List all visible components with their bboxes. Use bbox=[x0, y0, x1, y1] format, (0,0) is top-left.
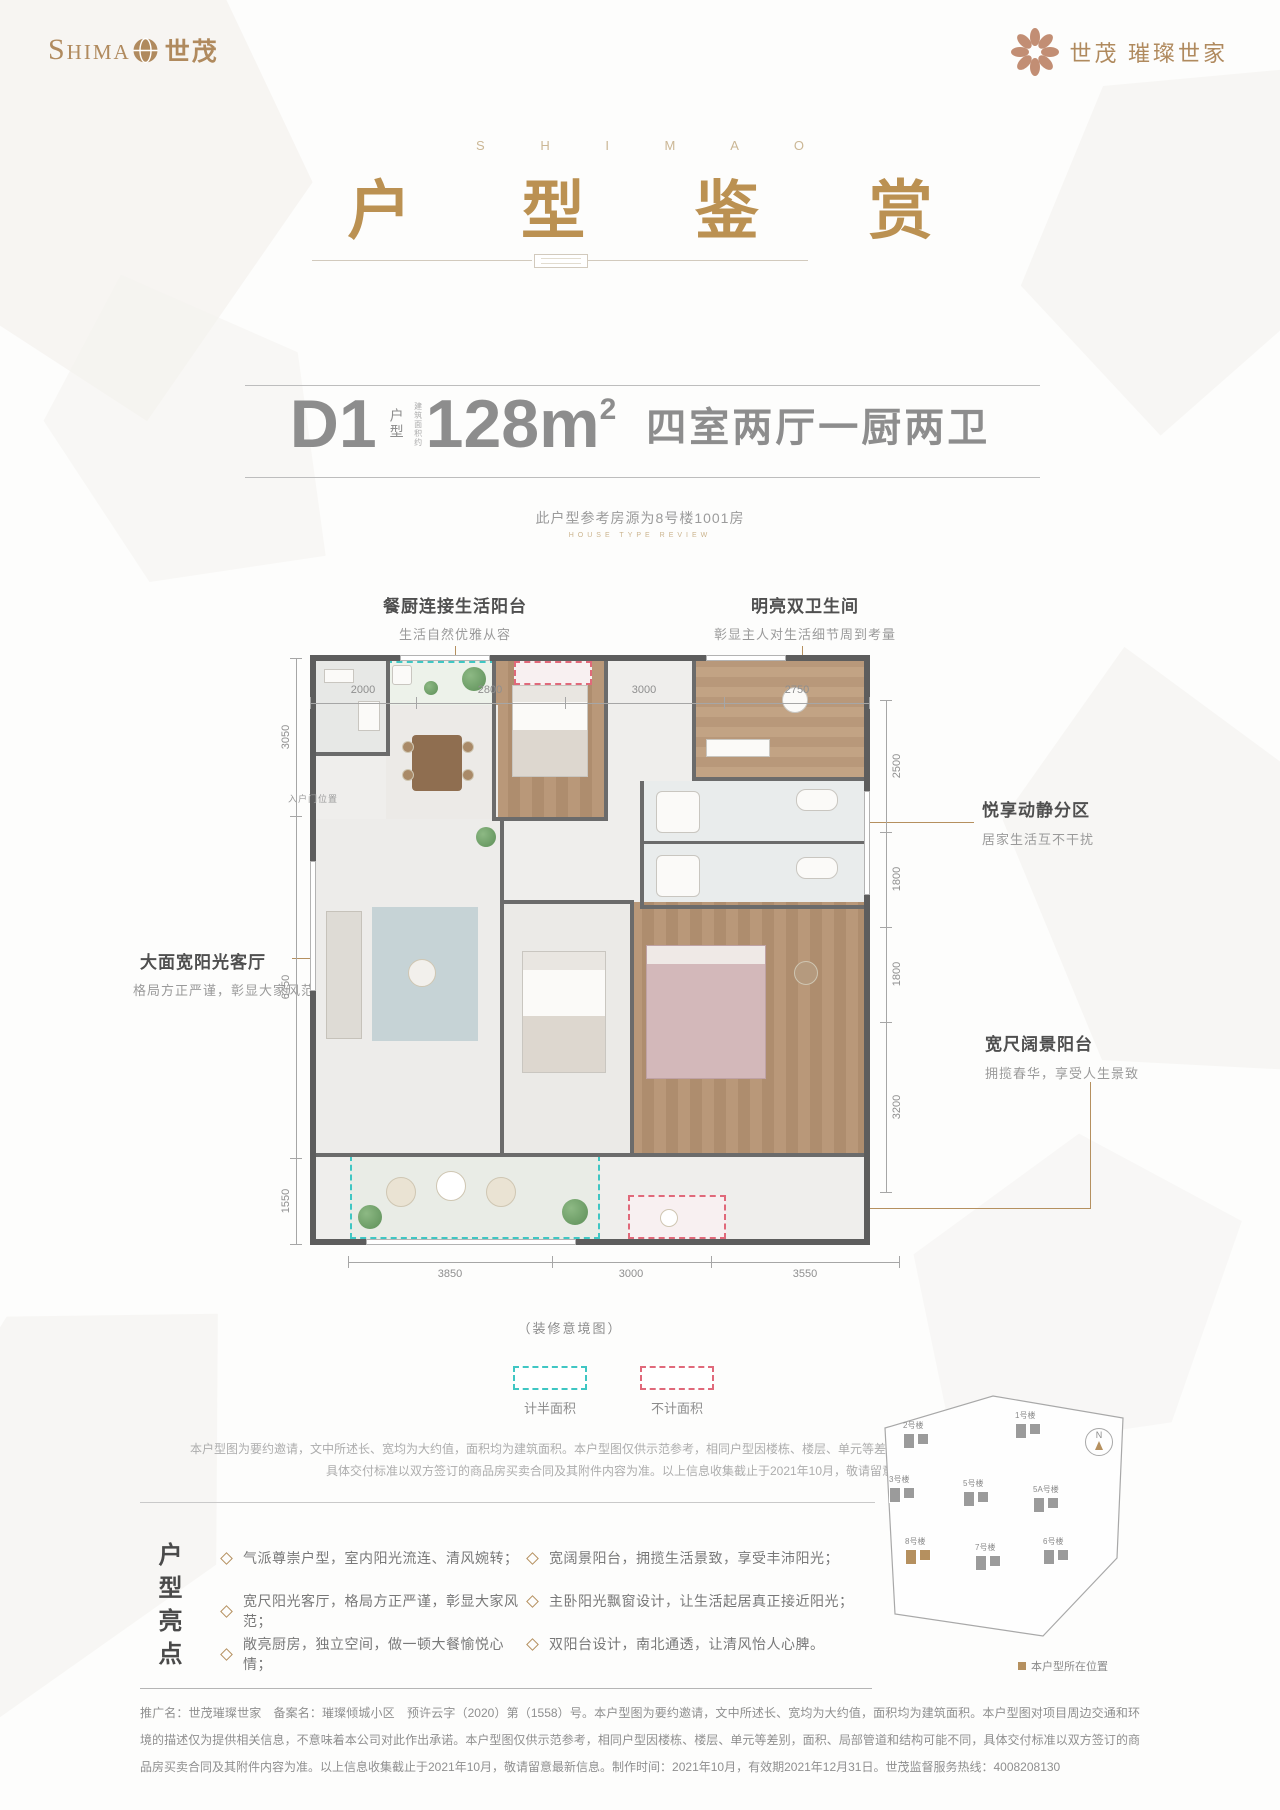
washing-machine bbox=[392, 665, 412, 685]
dim-tick bbox=[880, 700, 892, 701]
dim-label: 1800 bbox=[891, 849, 903, 909]
unit-reference-en: HOUSE TYPE REVIEW bbox=[0, 532, 1280, 539]
bathtub bbox=[656, 791, 700, 833]
wall bbox=[640, 841, 864, 844]
dim-tick bbox=[552, 1256, 553, 1268]
dim-label: 1550 bbox=[280, 1171, 292, 1231]
room-bathroom-north bbox=[694, 661, 864, 777]
dim-line-left bbox=[296, 658, 297, 1245]
callout-view-balcony: 宽尺阔景阳台 拥揽春华，享受人生景致 bbox=[985, 1030, 1185, 1082]
building: 3号楼 bbox=[889, 1474, 949, 1503]
title-english: S H I M A O bbox=[0, 138, 1280, 153]
dim-label: 3550 bbox=[775, 1268, 835, 1280]
highlight-item: 双阳台设计，南北通透，让清风怡人心脾。 bbox=[528, 1634, 858, 1654]
dining-chair bbox=[402, 769, 414, 781]
diamond-icon bbox=[220, 1605, 233, 1618]
highlight-text: 主卧阳光飘窗设计，让生活起居真正接近阳光； bbox=[549, 1591, 854, 1611]
wall bbox=[630, 902, 634, 1155]
wall bbox=[692, 661, 696, 779]
bed-north bbox=[512, 685, 588, 777]
title-ornament-box bbox=[534, 254, 588, 268]
window bbox=[706, 655, 786, 661]
highlight-item: 气派尊崇户型，室内阳光流连、清风婉转； bbox=[222, 1548, 522, 1568]
globe-icon bbox=[132, 37, 159, 64]
leader-line bbox=[1090, 1082, 1091, 1209]
highlight-text: 气派尊崇户型，室内阳光流连、清风婉转； bbox=[243, 1548, 519, 1568]
dim-tick bbox=[565, 697, 566, 709]
callout-kitchen-balcony: 餐厨连接生活阳台 生活自然优雅从容 bbox=[335, 592, 575, 643]
building: 6号楼 bbox=[1043, 1536, 1103, 1565]
callout-bathrooms: 明亮双卫生间 彰显主人对生活细节周到考量 bbox=[680, 592, 930, 643]
dim-tick bbox=[880, 1192, 892, 1193]
dim-tick bbox=[899, 1256, 900, 1268]
plant bbox=[476, 827, 496, 847]
unit-area: 128m2 bbox=[426, 390, 617, 458]
plant bbox=[562, 1199, 588, 1225]
wall bbox=[316, 1153, 864, 1157]
building: 7号楼 bbox=[975, 1542, 1035, 1571]
floor-plan bbox=[310, 655, 870, 1245]
section-divider-top bbox=[140, 1502, 875, 1503]
legend-excluded-area-label: 不计面积 bbox=[640, 1398, 714, 1417]
dim-tick bbox=[724, 697, 725, 709]
site-map: 2号楼 1号楼 3号楼 5号楼 5A号楼 8号楼 7号楼 6号楼 N bbox=[875, 1388, 1131, 1650]
diamond-icon bbox=[526, 1595, 539, 1608]
dim-tick bbox=[290, 816, 302, 817]
bay-window-north bbox=[514, 661, 592, 685]
callout-living-room: 大面宽阳光客厅 bbox=[140, 948, 300, 973]
dim-label: 2750 bbox=[767, 684, 827, 696]
dim-tick bbox=[880, 832, 892, 833]
dim-line-top bbox=[310, 703, 870, 704]
highlight-item: 宽阔景阳台，拥揽生活景致，享受丰沛阳光； bbox=[528, 1548, 858, 1568]
unit-rule-bottom bbox=[245, 477, 1040, 478]
wall bbox=[492, 817, 608, 821]
window bbox=[864, 791, 870, 895]
dim-label: 2500 bbox=[891, 736, 903, 796]
bath-counter bbox=[706, 739, 770, 757]
wall bbox=[640, 781, 644, 907]
bay-stool bbox=[660, 1209, 678, 1227]
wall bbox=[500, 819, 504, 1155]
wall bbox=[386, 661, 390, 756]
diamond-icon bbox=[220, 1648, 233, 1661]
dim-label: 3000 bbox=[614, 684, 674, 696]
dim-tick bbox=[880, 1022, 892, 1023]
title-ornament-line bbox=[312, 260, 532, 261]
project-logo: 世茂 璀璨世家 bbox=[1011, 28, 1228, 76]
sofa bbox=[326, 911, 362, 1039]
window bbox=[366, 1239, 576, 1245]
callout-title: 悦享动静分区 bbox=[982, 796, 1182, 821]
site-map-caption: 本户型所在位置 bbox=[1018, 1658, 1108, 1674]
unit-code-label: 户型 bbox=[387, 408, 407, 440]
highlight-item: 宽尺阳光客厅，格局方正严谨，彰显大家风范； bbox=[222, 1591, 522, 1631]
wall bbox=[604, 661, 608, 819]
armchair bbox=[794, 961, 818, 985]
footer-disclaimer: 推广名：世茂璀璨世家 备案名：璀璨倾城小区 预许云字（2020）第（1558）号… bbox=[140, 1700, 1140, 1781]
unit-area-label: 建筑面积约 bbox=[413, 402, 424, 447]
dim-tick bbox=[869, 697, 870, 709]
dim-tick bbox=[416, 697, 417, 709]
leaf-decoration bbox=[0, 1211, 340, 1769]
dim-label: 6450 bbox=[280, 957, 292, 1017]
building-highlighted: 8号楼 bbox=[905, 1536, 965, 1565]
dim-label: 2800 bbox=[460, 684, 520, 696]
dim-tick bbox=[290, 1158, 302, 1159]
highlight-item: 敞亮厨房，独立空间，做一顿大餐愉悦心情； bbox=[222, 1634, 522, 1674]
page-title: 户 型 鉴 赏 bbox=[0, 160, 1280, 252]
callout-desc: 生活自然优雅从容 bbox=[335, 624, 575, 643]
legend-half-area-swatch bbox=[513, 1366, 587, 1390]
toilet bbox=[796, 789, 838, 811]
dim-label: 3200 bbox=[891, 1077, 903, 1137]
compass-icon: N bbox=[1085, 1428, 1113, 1456]
callout-desc: 居家生活互不干扰 bbox=[982, 829, 1182, 848]
dim-tick bbox=[310, 697, 311, 709]
unit-reference: 此户型参考房源为8号楼1001房 bbox=[0, 508, 1280, 528]
building: 2号楼 bbox=[903, 1420, 963, 1449]
callout-desc: 拥揽春华，享受人生景致 bbox=[985, 1063, 1185, 1082]
legend-excluded-area-swatch bbox=[640, 1366, 714, 1390]
master-bed bbox=[522, 951, 606, 1073]
dim-tick bbox=[290, 658, 302, 659]
callout-title: 明亮双卫生间 bbox=[680, 592, 930, 617]
callout-zoning: 悦享动静分区 居家生活互不干扰 bbox=[982, 796, 1182, 848]
balcony-seat bbox=[486, 1177, 516, 1207]
balcony-table bbox=[436, 1171, 466, 1201]
window bbox=[310, 861, 316, 991]
plan-caption: （装修意境图） bbox=[0, 1318, 1140, 1337]
diamond-icon bbox=[526, 1552, 539, 1565]
dining-chair bbox=[462, 741, 474, 753]
dining-table bbox=[412, 735, 462, 791]
dim-label: 2000 bbox=[333, 684, 393, 696]
unit-header: D1 户型 建筑面积约 128m2 四室两厅一厨两卫 bbox=[290, 390, 991, 458]
dim-tick bbox=[290, 1244, 302, 1245]
location-square-icon bbox=[1018, 1662, 1026, 1670]
coffee-table bbox=[408, 959, 436, 987]
legend-half-area-label: 计半面积 bbox=[513, 1398, 587, 1417]
building: 1号楼 bbox=[1015, 1410, 1075, 1439]
highlight-text: 宽阔景阳台，拥揽生活景致，享受丰沛阳光； bbox=[549, 1548, 839, 1568]
balcony-seat bbox=[386, 1177, 416, 1207]
unit-room-count: 四室两厅一厨两卫 bbox=[646, 395, 990, 453]
dim-tick bbox=[348, 1256, 349, 1268]
wall bbox=[504, 900, 634, 904]
window bbox=[400, 655, 490, 661]
wall bbox=[640, 905, 864, 909]
poster-page: Shima 世茂 世茂 璀璨世家 S H I M A O 户 型 鉴 赏 bbox=[0, 0, 1280, 1810]
plant bbox=[358, 1205, 382, 1229]
dim-line-bottom bbox=[348, 1262, 899, 1263]
title-ornament-line bbox=[588, 260, 808, 261]
dim-label: 3050 bbox=[280, 707, 292, 767]
flower-icon bbox=[1011, 28, 1059, 76]
toilet bbox=[796, 857, 838, 879]
wall bbox=[316, 752, 388, 756]
dim-label: 3850 bbox=[420, 1268, 480, 1280]
callout-title: 餐厨连接生活阳台 bbox=[335, 592, 575, 617]
shimao-logo-text: Shima bbox=[48, 35, 131, 65]
wall bbox=[692, 777, 864, 781]
shimao-logo-cn: 世茂 bbox=[165, 32, 219, 68]
kitchen-sink bbox=[324, 669, 354, 683]
diamond-icon bbox=[220, 1552, 233, 1565]
callout-desc: 彰显主人对生活细节周到考量 bbox=[680, 624, 930, 643]
bathtub bbox=[656, 855, 700, 897]
plant bbox=[424, 681, 438, 695]
dim-tick bbox=[711, 1256, 712, 1268]
highlight-text: 宽尺阳光客厅，格局方正严谨，彰显大家风范； bbox=[243, 1591, 522, 1631]
building: 5号楼 bbox=[963, 1478, 1023, 1507]
building: 5A号楼 bbox=[1033, 1484, 1093, 1513]
kitchen-counter bbox=[358, 701, 380, 731]
diamond-icon bbox=[526, 1638, 539, 1651]
shimao-logo: Shima 世茂 bbox=[48, 32, 219, 68]
dim-tick bbox=[880, 927, 892, 928]
project-logo-text: 世茂 璀璨世家 bbox=[1069, 36, 1228, 68]
callout-title: 宽尺阔景阳台 bbox=[985, 1030, 1185, 1055]
dim-line-right bbox=[886, 700, 887, 1192]
callout-title: 大面宽阳光客厅 bbox=[140, 948, 300, 973]
unit-code: D1 bbox=[290, 390, 377, 458]
highlight-item: 主卧阳光飘窗设计，让生活起居真正接近阳光； bbox=[528, 1591, 858, 1611]
site-map-caption-text: 本户型所在位置 bbox=[1031, 1658, 1108, 1674]
dim-label: 3000 bbox=[601, 1268, 661, 1280]
dining-chair bbox=[402, 741, 414, 753]
section-divider-bottom bbox=[140, 1688, 872, 1689]
dim-label: 1800 bbox=[891, 944, 903, 1004]
highlight-text: 敞亮厨房，独立空间，做一顿大餐愉悦心情； bbox=[243, 1634, 522, 1674]
highlights-title: 户型亮点 bbox=[150, 1542, 185, 1674]
highlight-text: 双阳台设计，南北通透，让清风怡人心脾。 bbox=[549, 1634, 825, 1654]
dining-chair bbox=[462, 769, 474, 781]
bed-south bbox=[646, 945, 766, 1079]
